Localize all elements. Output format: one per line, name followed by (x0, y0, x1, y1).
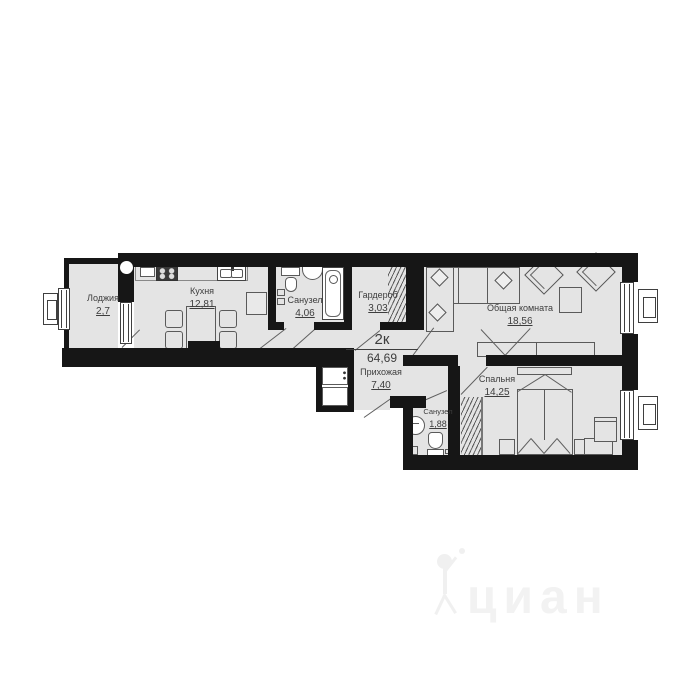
wall-right (622, 440, 638, 470)
bathtub-icon (322, 267, 344, 320)
watermark-figure-line (434, 594, 446, 615)
room-label-bathroom-small: Санузел 1,88 (423, 407, 452, 431)
bedroom-side-table-top (595, 420, 616, 422)
room-name: Санузел (423, 407, 452, 418)
wall-living-bedroom (486, 355, 622, 366)
apartment-total-area: 64,69 (346, 349, 418, 365)
shaft-wall (316, 406, 354, 412)
small-toilet-bowl-icon (428, 432, 443, 449)
room-name: Санузел (287, 294, 322, 307)
apartment-type: 2к (346, 331, 418, 348)
wall-living-left (406, 253, 424, 330)
room-area: 18,56 (487, 315, 553, 330)
column-icon (120, 261, 133, 274)
room-area: 14,25 (479, 386, 515, 401)
room-name: Спальня (479, 373, 515, 386)
wall-right (622, 253, 638, 282)
bedroom-window (620, 390, 634, 440)
wall-bottom (403, 455, 638, 470)
wall-bathroom-bottom (314, 322, 352, 330)
loggia-window-bracket (43, 293, 58, 325)
room-name: Гардероб (358, 289, 398, 302)
sofa-seam (458, 268, 459, 303)
bed-center-line (544, 390, 545, 440)
shaft-meter-dots (343, 371, 346, 380)
shaft-panel (322, 387, 348, 406)
room-name: Кухня (189, 285, 214, 298)
wall-loggia-top (64, 258, 120, 264)
wall-bump (188, 341, 220, 349)
stove-icon (156, 266, 178, 281)
bedroom-window-bracket (638, 396, 658, 430)
room-label-hallway: Прихожая 7,40 (360, 366, 402, 394)
chair (165, 310, 183, 328)
fridge (246, 292, 267, 315)
room-area: 2,7 (87, 305, 119, 320)
apartment-title: 2к 64,69 (346, 331, 418, 365)
room-label-bedroom: Спальня 14,25 (479, 373, 515, 401)
room-label-kitchen: Кухня 12,81 (189, 285, 214, 313)
wall-bathroom-wardrobe (344, 253, 352, 322)
side-table (559, 287, 582, 313)
kitchen-cabinet (140, 267, 155, 277)
room-label-bathroom-main: Санузел 4,06 (287, 294, 322, 322)
radiator (277, 289, 285, 296)
sofa-seam (487, 268, 488, 303)
wall-loggia-left (64, 330, 69, 350)
room-area: 1,88 (423, 418, 452, 431)
room-name: Лоджия (87, 292, 119, 305)
room-label-loggia: Лоджия 2,7 (87, 292, 119, 320)
chair (165, 331, 183, 349)
small-washbasin-tap (413, 423, 419, 424)
room-label-wardrobe: Гардероб 3,03 (358, 289, 398, 317)
toilet-tank-icon (281, 267, 300, 276)
room-area: 4,06 (287, 307, 322, 322)
floor-plan-page: Лоджия 2,7 Кухня 12,81 Санузел 4,06 Гард… (0, 0, 700, 700)
watermark-text: циан (467, 570, 610, 625)
room-name: Прихожая (360, 366, 402, 379)
room-name: Общая комната (487, 302, 553, 315)
radiator (277, 298, 285, 305)
wall-bathroom-small-left (403, 396, 413, 455)
wall-bathroom-left (268, 253, 276, 322)
wall-top (118, 253, 638, 267)
wall-bathroom-bottom (268, 322, 284, 330)
wall-right (622, 334, 638, 390)
living-room-window (620, 282, 634, 334)
balcony-door-panel (120, 302, 132, 344)
room-label-living-room: Общая комната 18,56 (487, 302, 553, 330)
wall-loggia-left (64, 258, 69, 288)
chair (219, 310, 237, 328)
kitchen-sink-icon (217, 266, 246, 281)
loggia-window (58, 288, 70, 330)
room-area: 3,03 (358, 302, 398, 317)
room-area: 12,81 (189, 298, 214, 313)
nightstand (499, 439, 515, 455)
chair (219, 331, 237, 349)
living-room-window-bracket (638, 289, 658, 323)
toilet-bowl-icon (285, 277, 297, 292)
bedroom-closet-shelving (461, 397, 481, 455)
wall-bottom-left (62, 348, 354, 367)
bedroom-closet-front (481, 397, 483, 455)
room-area: 7,40 (360, 379, 402, 394)
watermark-spark-icon (459, 548, 465, 554)
watermark: циан (415, 548, 685, 658)
